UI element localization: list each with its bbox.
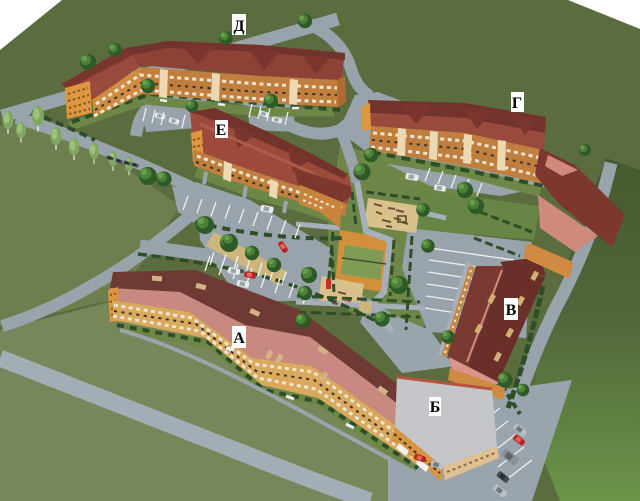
svg-text:Г: Г (512, 95, 522, 112)
svg-text:Б: Б (430, 399, 441, 416)
svg-text:В: В (506, 302, 517, 319)
svg-text:Е: Е (216, 122, 227, 139)
svg-text:А: А (233, 330, 245, 347)
svg-text:Д: Д (233, 18, 244, 35)
